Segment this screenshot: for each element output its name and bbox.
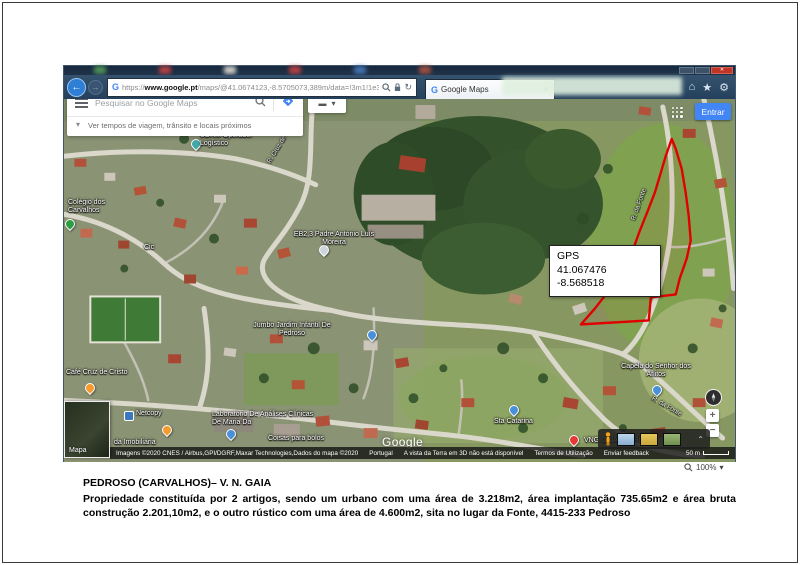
url-text: https://www.google.pt/maps/@41.0674123,-… — [122, 83, 379, 92]
map-label-coisas[interactable]: Coisas para bolos — [268, 435, 330, 443]
google-favicon: G — [112, 82, 119, 92]
directions-icon[interactable] — [281, 99, 295, 113]
blur-artifact — [419, 66, 431, 74]
scale-bar — [703, 451, 729, 455]
caption-body: Propriedade constituída por 2 artigos, s… — [83, 492, 736, 521]
blur-artifact — [354, 66, 366, 74]
travel-times-hint[interactable]: ▾ Ver tempos de viagem, trânsito e locai… — [67, 117, 303, 136]
search-icon[interactable] — [255, 99, 266, 112]
gps-latitude: 41.067476 — [557, 264, 653, 278]
home-icon[interactable]: ⌂ — [689, 81, 696, 93]
menu-hamburger-icon[interactable] — [75, 99, 88, 110]
poi-icon-netcopy[interactable] — [124, 411, 134, 421]
earth-3d-notice: A vista da Terra em 3D não está disponív… — [404, 450, 524, 457]
search-input[interactable]: Pesquisar no Google Maps — [95, 99, 248, 108]
map-label-colegio[interactable]: Colégio dos Carvalhos — [68, 199, 132, 215]
collapsed-widget[interactable]: ▬ ▾ — [308, 99, 346, 113]
map-inset-label: Mapa — [69, 447, 87, 454]
maximize-button[interactable] — [695, 67, 710, 74]
caret-down-icon: ▾ — [331, 99, 335, 108]
imagery-thumbnail[interactable] — [617, 433, 635, 446]
country-label: Portugal — [369, 450, 392, 457]
title-bar: ✕ — [64, 66, 735, 75]
zoom-magnifier-icon — [684, 463, 693, 472]
forward-button[interactable]: → — [88, 80, 103, 95]
map-label-eb23-padre-antonio[interactable]: EB2,3 Padre António Luís Moreira — [288, 231, 380, 247]
map-label-jumbo-jardim[interactable]: Jumbo Jardim Infantil De Pedroso — [252, 322, 332, 338]
map-type-inset[interactable]: Mapa — [64, 401, 110, 458]
feedback-link[interactable]: Enviar feedback — [604, 450, 649, 457]
browser-window: ✕ ← → G https://www.google.pt/maps/@41.0… — [63, 65, 736, 462]
map-label-imobiliaria[interactable]: da Imobiliária — [114, 439, 156, 447]
map-label-cic[interactable]: Cic — [144, 244, 154, 252]
tab-title: Google Maps — [441, 85, 489, 94]
imagery-thumbnail[interactable] — [640, 433, 658, 446]
blur-artifact — [159, 66, 171, 74]
address-bar[interactable]: G https://www.google.pt/maps/@41.0674123… — [107, 78, 417, 97]
google-favicon: G — [431, 85, 438, 95]
sign-in-button[interactable]: Entrar — [695, 103, 731, 120]
caret-down-icon: ▾ — [719, 463, 723, 472]
gps-coordinates-box: GPS 41.067476 -8.568518 — [549, 245, 661, 297]
gps-title: GPS — [557, 250, 653, 264]
gps-longitude: -8.568518 — [557, 277, 653, 291]
search-icon[interactable] — [382, 83, 391, 92]
blur-artifact — [224, 66, 236, 74]
imagery-attribution: Imagens ©2020 CNES / Airbus,GPI/DGRF,Max… — [116, 450, 358, 457]
refresh-icon[interactable]: ↻ — [404, 83, 412, 92]
scale-label: 50 m — [686, 450, 700, 457]
back-button[interactable]: ← — [67, 78, 86, 97]
google-apps-grid-icon[interactable] — [672, 107, 683, 118]
map-label-capela[interactable]: Capela do Senhor dos Aflitos — [620, 363, 692, 379]
ie-zoom-indicator[interactable]: 100% ▾ — [684, 463, 723, 472]
satellite-map[interactable]: UDHM Operador Logístico R. Cruz de Carra… — [64, 99, 735, 462]
map-label-cafe-cruz[interactable]: Café Cruz de Cristo — [66, 369, 136, 377]
navigation-bar: ← → G https://www.google.pt/maps/@41.067… — [64, 75, 735, 99]
compass-icon[interactable] — [705, 389, 722, 406]
map-label-laboratorio[interactable]: Laboratório De Análises Clínicas De Mari… — [212, 411, 324, 427]
terms-link[interactable]: Termos de Utilização — [534, 450, 592, 457]
close-button[interactable]: ✕ — [711, 67, 733, 74]
favorites-star-icon[interactable]: ★ — [702, 81, 712, 94]
property-caption: PEDROSO (CARVALHOS)– V. N. GAIA Propried… — [83, 476, 736, 521]
imagery-thumbnail[interactable] — [663, 433, 681, 446]
minimize-button[interactable] — [679, 67, 694, 74]
chevron-down-icon: ▾ — [76, 121, 80, 129]
caption-title: PEDROSO (CARVALHOS)– V. N. GAIA — [83, 476, 736, 491]
settings-gear-icon[interactable]: ⚙ — [719, 81, 729, 94]
map-label-netcopy[interactable]: Netcopy — [136, 410, 162, 418]
pegman-icon[interactable] — [604, 432, 612, 446]
blur-artifact — [289, 66, 301, 74]
dash-icon: ▬ — [318, 99, 326, 108]
street-view-bar[interactable]: ⌃ — [598, 429, 710, 449]
collapse-chevron-icon[interactable]: ⌃ — [697, 435, 704, 444]
lock-icon — [394, 83, 401, 92]
blur-artifact — [94, 66, 106, 74]
blur-artifact — [502, 77, 682, 95]
maps-search-panel: Pesquisar no Google Maps ▾ Ver tempos de… — [67, 99, 303, 136]
zoom-in-button[interactable]: + — [706, 409, 719, 422]
map-label-sta-catarina[interactable]: Sta Catarina — [494, 418, 533, 426]
